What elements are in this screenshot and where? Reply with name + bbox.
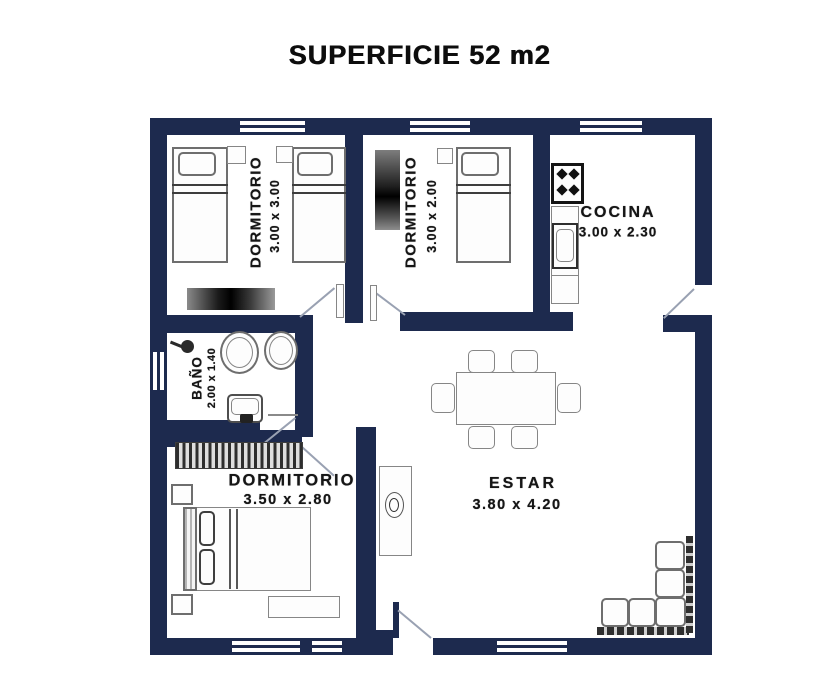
entrance-vestibule-wall <box>663 315 712 332</box>
blanket-line <box>456 184 511 194</box>
pillow <box>297 152 333 176</box>
sofa-cushion <box>601 598 629 627</box>
rug <box>187 288 275 310</box>
room-name: DORMITORIO <box>403 156 420 268</box>
room-name: DORMITORIO <box>229 472 356 491</box>
stove-burner <box>568 168 579 179</box>
room-name: COCINA <box>580 204 655 222</box>
chair <box>468 350 495 373</box>
stove-burner <box>556 184 567 195</box>
washbasin-drain <box>240 414 253 423</box>
stove-burner <box>556 168 567 179</box>
wall-bedroom3-right-foot <box>356 630 393 655</box>
wall-bottom <box>150 638 232 655</box>
window <box>150 352 167 390</box>
chair <box>511 426 538 449</box>
stove-burner <box>568 184 579 195</box>
wall-bottom <box>567 638 712 655</box>
wall-right <box>695 118 712 285</box>
stove <box>551 163 584 204</box>
pillow <box>199 549 215 585</box>
chair <box>468 426 495 449</box>
patio-door-jamb <box>393 602 399 638</box>
wall-divider-bedrooms <box>345 135 363 323</box>
shower-arm <box>170 341 183 349</box>
room-dimensions: 3.50 x 2.80 <box>243 492 332 508</box>
kitchen-cabinet <box>551 275 579 304</box>
headboard <box>183 507 197 591</box>
window <box>232 638 300 655</box>
nightstand <box>227 146 246 164</box>
wall-right <box>695 318 712 655</box>
pillow <box>461 152 499 176</box>
chair <box>557 383 581 413</box>
room-name: ESTAR <box>489 475 557 493</box>
wardrobe <box>375 150 400 230</box>
sofa-cushion <box>655 541 685 570</box>
door-leaf <box>370 285 377 321</box>
toilet-bowl <box>226 337 253 368</box>
sink-bowl <box>556 229 574 262</box>
nightstand <box>171 484 193 505</box>
chair <box>511 350 538 373</box>
blanket-line <box>292 184 346 194</box>
wall-bedroom3-right <box>356 427 376 655</box>
washbasin-bowl <box>231 398 259 415</box>
wall-top <box>470 118 580 135</box>
dresser <box>268 596 340 618</box>
wall-bottom <box>433 638 497 655</box>
door-leaf <box>336 284 344 318</box>
shower-head-icon <box>181 340 194 353</box>
plant-leaf <box>389 498 399 512</box>
chair <box>431 383 455 413</box>
wardrobe <box>175 442 303 469</box>
room-dimensions: 3.00 x 2.30 <box>579 225 658 240</box>
sofa-cushion <box>655 597 686 627</box>
sofa-base <box>686 536 693 633</box>
wall-bathroom-right <box>295 315 313 437</box>
room-dimensions: 3.00 x 3.00 <box>268 179 282 253</box>
room-dimensions: 3.80 x 4.20 <box>472 497 561 513</box>
room-dimensions: 3.00 x 2.00 <box>425 179 439 253</box>
window <box>240 118 305 135</box>
blanket-line <box>172 184 228 194</box>
blanket-fold <box>229 509 238 589</box>
wall-kitchen-divider <box>533 135 550 331</box>
sofa-base <box>597 627 689 635</box>
door-leaf <box>268 414 298 416</box>
bidet-bowl <box>269 336 293 365</box>
sofa-cushion <box>655 569 685 598</box>
door-swing-bedroom1 <box>299 287 335 317</box>
nightstand <box>437 148 453 164</box>
window <box>312 638 342 655</box>
pillow <box>199 511 215 546</box>
wall-top <box>305 118 410 135</box>
page-title: SUPERFICIE 52 m2 <box>0 40 839 71</box>
wall-bottom <box>300 638 312 655</box>
nightstand <box>276 146 293 163</box>
window <box>497 638 567 655</box>
sofa-cushion <box>628 598 656 627</box>
room-dimensions: 2.00 x 1.40 <box>206 348 218 409</box>
window <box>580 118 642 135</box>
dining-table <box>456 372 556 425</box>
floor-plan-page: SUPERFICIE 52 m2 <box>0 0 839 692</box>
pillow <box>178 152 216 176</box>
room-name: DORMITORIO <box>248 156 265 268</box>
door-swing-patio <box>397 610 431 639</box>
room-name: BAÑO <box>190 356 205 400</box>
nightstand <box>171 594 193 615</box>
window <box>410 118 470 135</box>
